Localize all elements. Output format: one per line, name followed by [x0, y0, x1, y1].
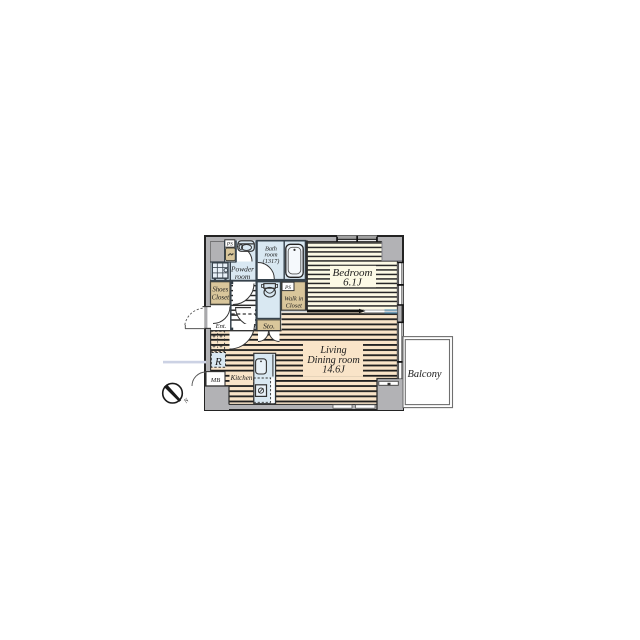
svg-text:Shoes: Shoes: [212, 287, 228, 294]
svg-text:(1317): (1317): [263, 258, 280, 265]
svg-text:room: room: [235, 272, 251, 281]
svg-text:PS: PS: [226, 242, 233, 248]
svg-text:Sto.: Sto.: [263, 322, 275, 331]
svg-text:R: R: [214, 356, 222, 368]
svg-text:Closet: Closet: [212, 294, 230, 301]
svg-text:PS: PS: [284, 285, 291, 291]
svg-text:N: N: [183, 397, 191, 405]
svg-text:Ent.: Ent.: [215, 323, 227, 330]
svg-text:Walk in: Walk in: [284, 295, 303, 302]
svg-text:Kitchen: Kitchen: [230, 374, 253, 382]
svg-text:Balcony: Balcony: [407, 369, 441, 380]
svg-text:MB: MB: [210, 377, 221, 384]
svg-text:Closet: Closet: [286, 303, 303, 310]
svg-text:6.1J: 6.1J: [343, 277, 363, 289]
svg-text:14.6J: 14.6J: [322, 364, 345, 375]
